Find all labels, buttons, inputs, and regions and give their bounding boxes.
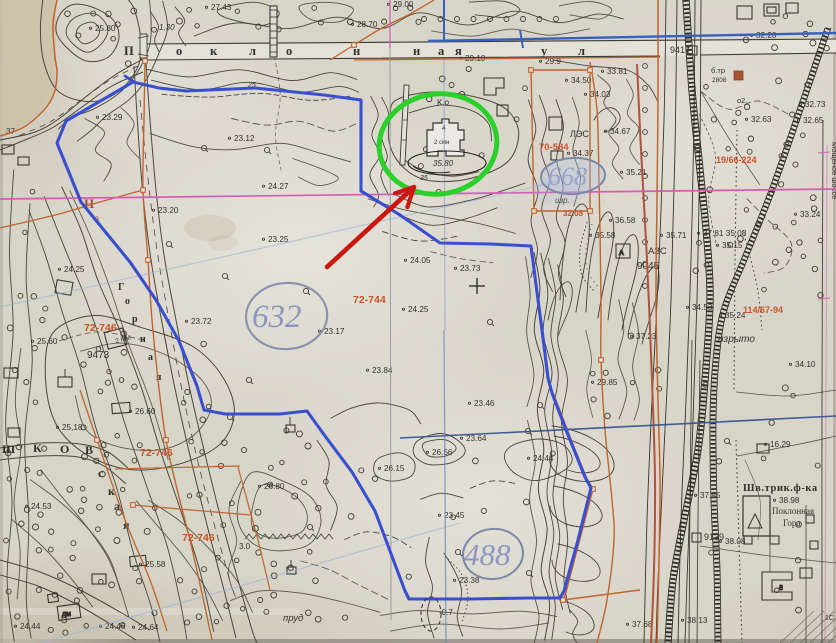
svg-text:488: 488 xyxy=(464,537,511,572)
svg-text:668: 668 xyxy=(548,162,587,191)
svg-text:632: 632 xyxy=(252,299,302,335)
